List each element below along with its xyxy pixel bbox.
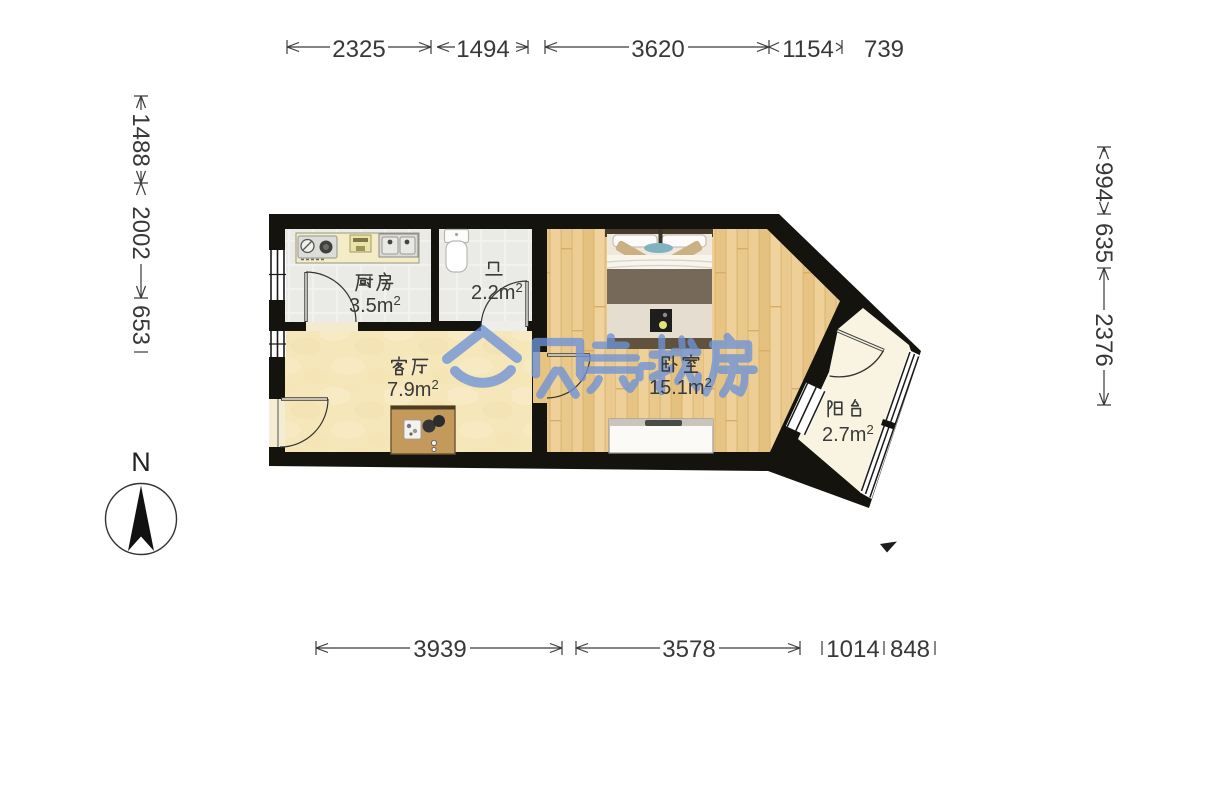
svg-text:15.1m2: 15.1m2 (649, 375, 712, 399)
svg-text:635: 635 (1090, 223, 1117, 263)
svg-text:2325: 2325 (332, 36, 385, 63)
svg-text:3.5m2: 3.5m2 (349, 293, 401, 317)
svg-text:1154: 1154 (782, 36, 834, 63)
svg-text:1014: 1014 (826, 636, 879, 663)
svg-text:3939: 3939 (413, 636, 466, 663)
svg-text:2.2m2: 2.2m2 (471, 280, 523, 304)
svg-text:848: 848 (890, 636, 930, 663)
svg-text:2376: 2376 (1090, 313, 1117, 366)
svg-text:739: 739 (864, 36, 904, 63)
svg-text:3620: 3620 (631, 36, 684, 63)
svg-text:2.7m2: 2.7m2 (822, 422, 874, 446)
svg-text:1488: 1488 (127, 113, 154, 166)
svg-text:1494: 1494 (456, 36, 509, 63)
svg-text:994: 994 (1090, 162, 1117, 202)
svg-text:N: N (131, 447, 151, 477)
svg-text:653: 653 (127, 305, 154, 345)
svg-text:7.9m2: 7.9m2 (387, 377, 439, 401)
svg-text:2002: 2002 (127, 206, 154, 259)
svg-text:3578: 3578 (662, 636, 715, 663)
